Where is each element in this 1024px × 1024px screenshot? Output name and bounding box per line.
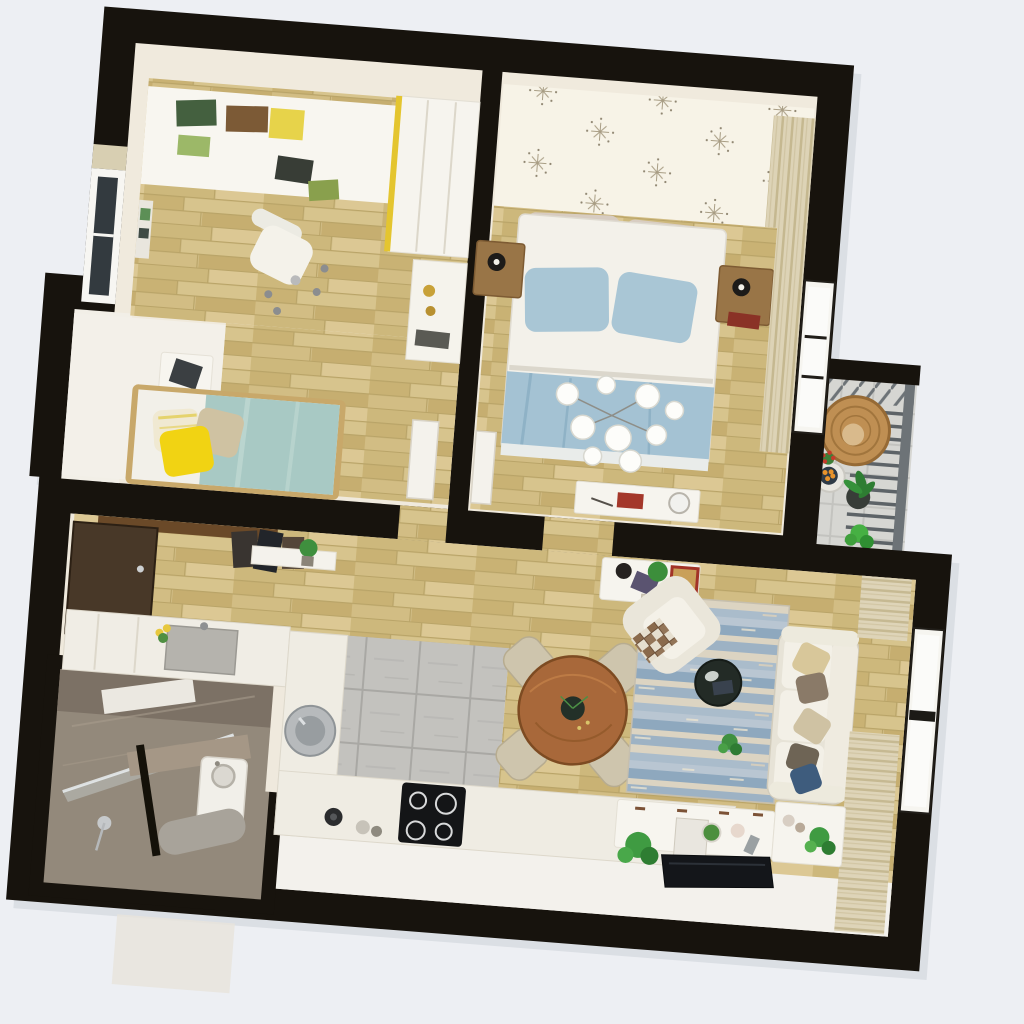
kitchen-tile-floor	[334, 635, 509, 799]
sofa-pillow-brown	[795, 671, 830, 704]
master-pillow-left	[525, 267, 610, 332]
desk-yellow-rack	[269, 108, 305, 141]
chandelier-globe-9	[619, 449, 643, 473]
desk-artwork-2	[226, 105, 269, 132]
kitchen-sink-inset	[165, 625, 238, 674]
cooktop	[398, 782, 467, 847]
chandelier-globe-8	[583, 446, 602, 465]
desk-green-pad	[177, 135, 210, 157]
living-window-latch	[909, 710, 936, 722]
office-window-bar	[93, 234, 113, 236]
chandelier-globe-1	[556, 382, 580, 406]
bedroom-curtain-corner	[765, 115, 816, 230]
desk-green-folder	[308, 179, 339, 201]
bedroom-window-bar-2	[802, 376, 824, 378]
curtain-window-top	[857, 576, 912, 642]
dresser	[406, 259, 468, 363]
exterior-mat	[112, 914, 235, 993]
shelf-book-dark	[138, 228, 149, 239]
bedroom-wallpaper	[494, 84, 815, 230]
pillow-yellow	[158, 424, 215, 478]
apartment-floorplan-screenshot	[0, 0, 1024, 1024]
master-pillow-right	[610, 270, 699, 344]
moss-bowl	[702, 823, 721, 842]
washer-door	[212, 764, 236, 788]
hall-plant-pot	[301, 556, 314, 567]
vanity-red-box	[617, 492, 644, 509]
office-door-leaf	[407, 420, 439, 500]
bedroom-window-bar-1	[805, 336, 827, 338]
plan-group	[0, 0, 1024, 1024]
office-doorway-floor	[398, 505, 449, 543]
chandelier-globe-4	[665, 401, 684, 420]
corner-sideboard	[771, 802, 845, 867]
shelf-book-green	[140, 208, 151, 221]
vanity-mirror	[668, 492, 690, 514]
coffee-table-book	[712, 680, 734, 695]
chandelier-globe-2	[597, 375, 616, 394]
chandelier-globe-7	[646, 424, 668, 446]
bedroom-doorway-floor	[542, 517, 614, 556]
wardrobe	[388, 96, 480, 258]
office-window-blind	[92, 144, 128, 171]
apartment-floor-plan-3d-render	[0, 0, 1024, 1024]
desk-artwork-1	[176, 99, 217, 126]
